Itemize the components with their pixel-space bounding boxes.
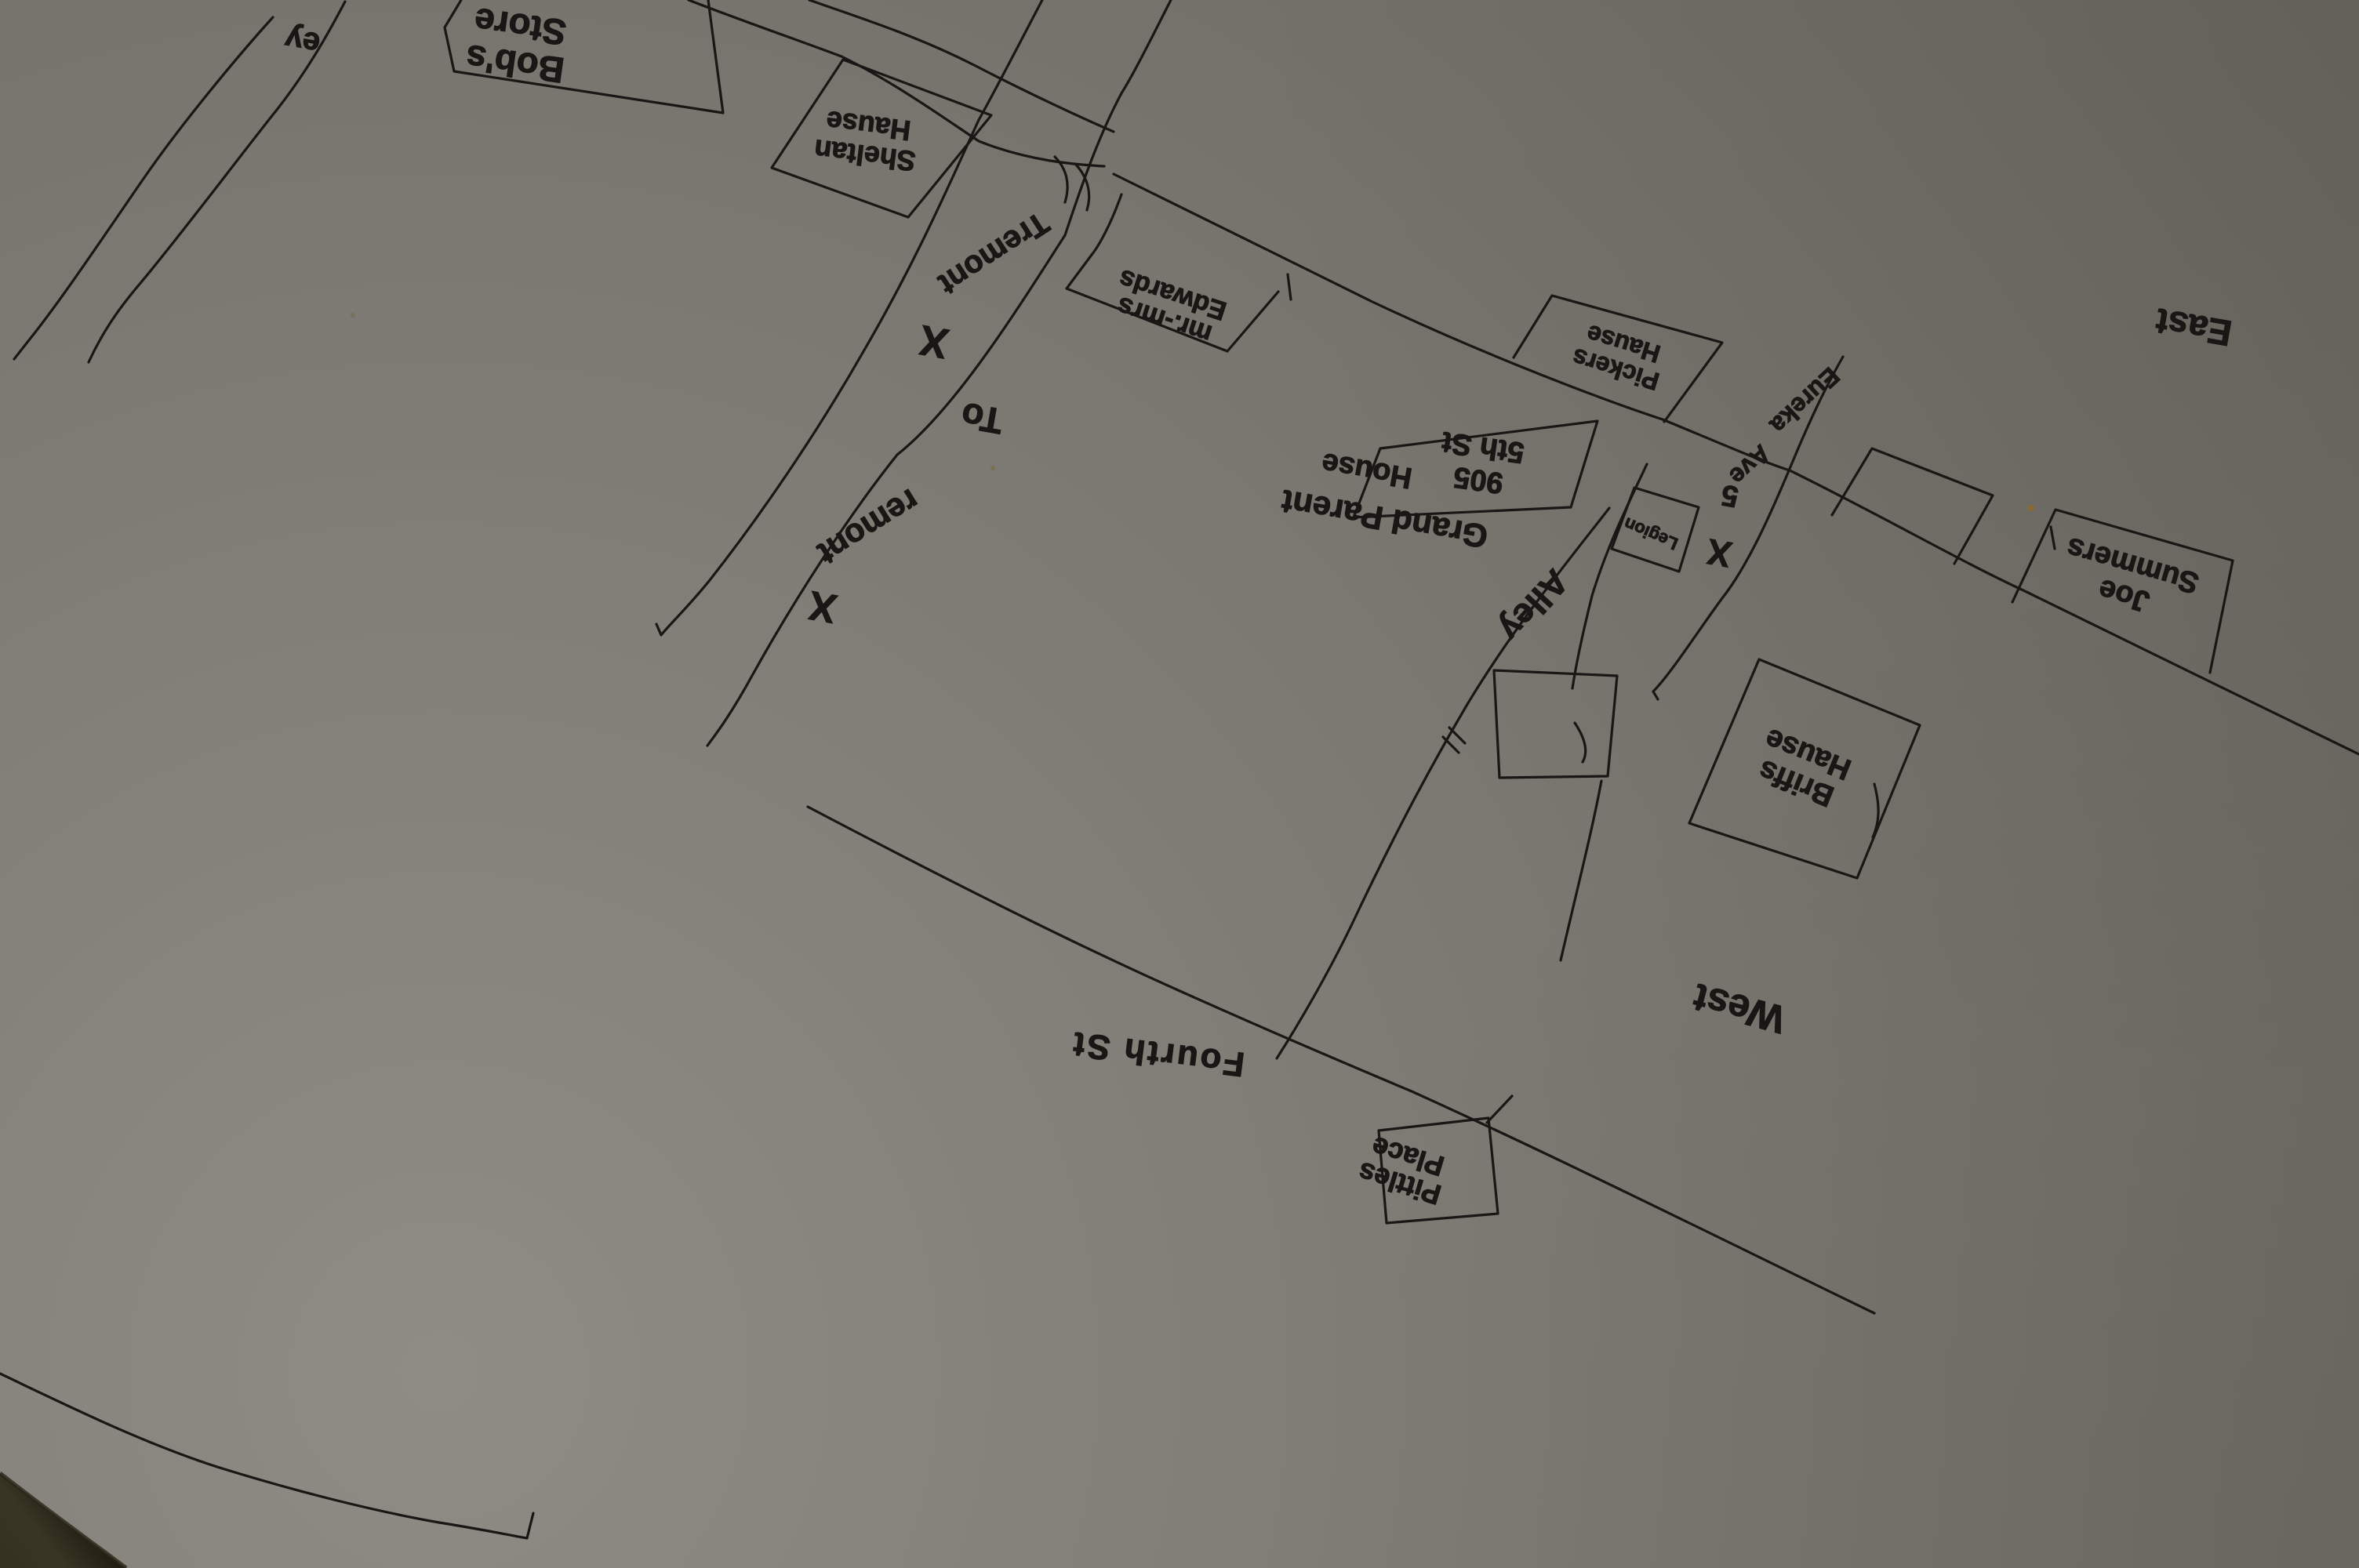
svg-text:To: To [958, 395, 1006, 442]
svg-text:ey: ey [282, 21, 322, 61]
